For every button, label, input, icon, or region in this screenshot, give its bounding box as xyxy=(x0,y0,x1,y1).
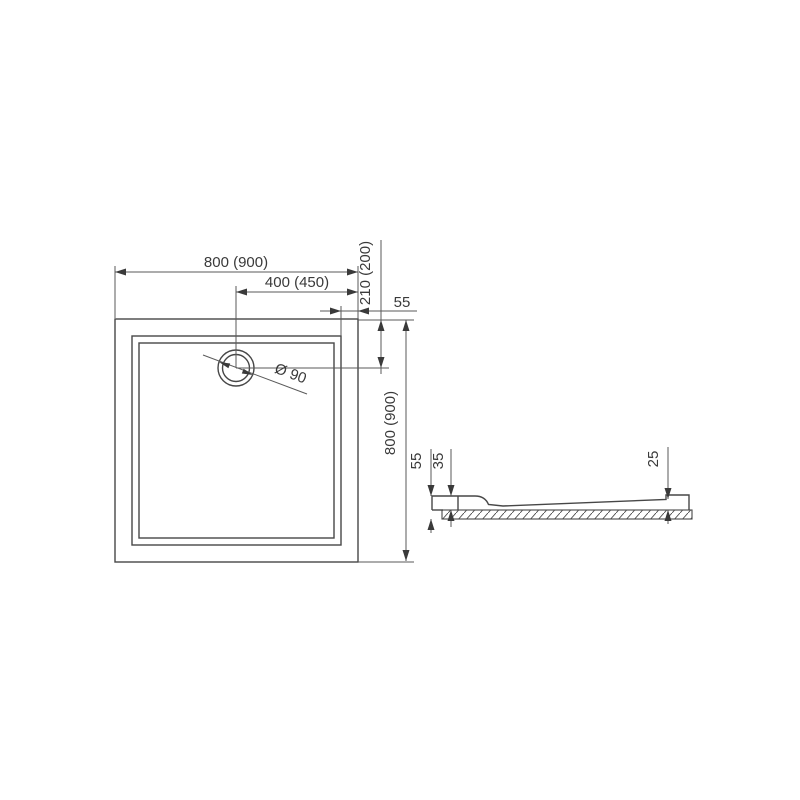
base-plate-hatched xyxy=(442,510,692,519)
dim-label-rim-width: 55 xyxy=(394,294,411,311)
background xyxy=(0,0,800,800)
shower-tray-technical-drawing: 800 (900) 400 (450) 55 210 (200) xyxy=(0,0,800,800)
dim-label-section-edge-height: 25 xyxy=(645,451,662,468)
drawing-canvas: 800 (900) 400 (450) 55 210 (200) xyxy=(0,0,800,800)
dim-label-section-total-height: 55 xyxy=(408,453,425,470)
dim-label-overall-height: 800 (900) xyxy=(382,391,399,455)
dim-label-drain-offset-x: 400 (450) xyxy=(265,274,329,291)
dim-label-drain-offset-y: 210 (200) xyxy=(357,241,374,305)
dim-label-section-inner-depth: 35 xyxy=(430,453,447,470)
dim-label-overall-width: 800 (900) xyxy=(204,254,268,271)
